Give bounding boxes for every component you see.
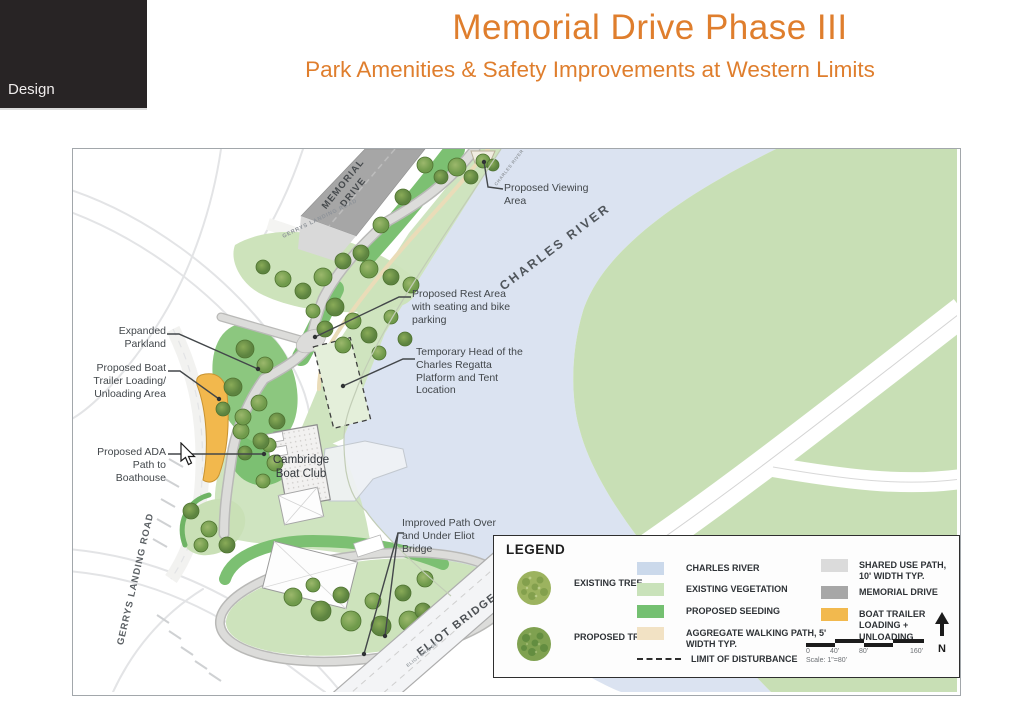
scale-tick-80: 80' [859,648,868,655]
annotation-expanded-parkland: Expanded Parkland [92,325,166,351]
legend-swatch-charles-river [637,562,664,575]
annotation-rest-area: Proposed Rest Area with seating and bike… [412,288,518,326]
legend-label-boat-trailer: BOAT TRAILER LOADING + UNLOADING [859,609,939,643]
legend-swatch-limit-of-disturbance [637,658,681,660]
annotation-boat-club: Cambridge Boat Club [260,453,342,481]
legend-label-shared-use-path: SHARED USE PATH, 10' WIDTH TYP. [859,560,951,583]
annotation-boat-trailer: Proposed Boat Trailer Loading/ Unloading… [68,362,166,400]
scale-bar: 0 40' 80' 160' Scale: 1"=80' [806,639,924,665]
annotation-improved-path: Improved Path Over and Under Eliot Bridg… [402,517,498,555]
section-label: Design [8,81,55,98]
annotation-regatta: Temporary Head of the Charles Regatta Pl… [416,346,528,397]
section-tab: Design [0,0,147,110]
legend-swatch-aggregate-path [637,627,664,640]
mouse-cursor-icon [180,442,200,468]
proposed-tree-icon [512,622,556,666]
scale-note: Scale: 1"=80' [806,657,847,664]
annotation-ada-path: Proposed ADA Path to Boathouse [86,446,166,484]
page-title: Memorial Drive Phase III [270,8,1030,48]
legend-swatch-memorial-drive [821,586,848,599]
page-subtitle: Park Amenities & Safety Improvements at … [150,57,1030,83]
legend-swatch-proposed-seeding [637,605,664,618]
annotation-viewing-area: Proposed Viewing Area [504,182,596,208]
legend-label-memorial-drive: MEMORIAL DRIVE [859,587,951,598]
north-arrow-icon [934,612,950,636]
legend-title: LEGEND [506,542,565,557]
scale-tick-0: 0 [806,648,810,655]
north-label: N [932,643,952,655]
scale-tick-40: 40' [830,648,839,655]
scale-tick-160: 160' [910,648,923,655]
north-arrow: N [932,612,952,655]
legend: LEGEND EXISTING TREE PROPOSED TREE CHARL… [493,535,960,678]
slide: Design Memorial Drive Phase III Park Ame… [0,0,1031,713]
legend-swatch-shared-use-path [821,559,848,572]
existing-tree-icon [512,566,556,610]
legend-swatch-existing-vegetation [637,583,664,596]
legend-swatch-boat-trailer [821,608,848,621]
